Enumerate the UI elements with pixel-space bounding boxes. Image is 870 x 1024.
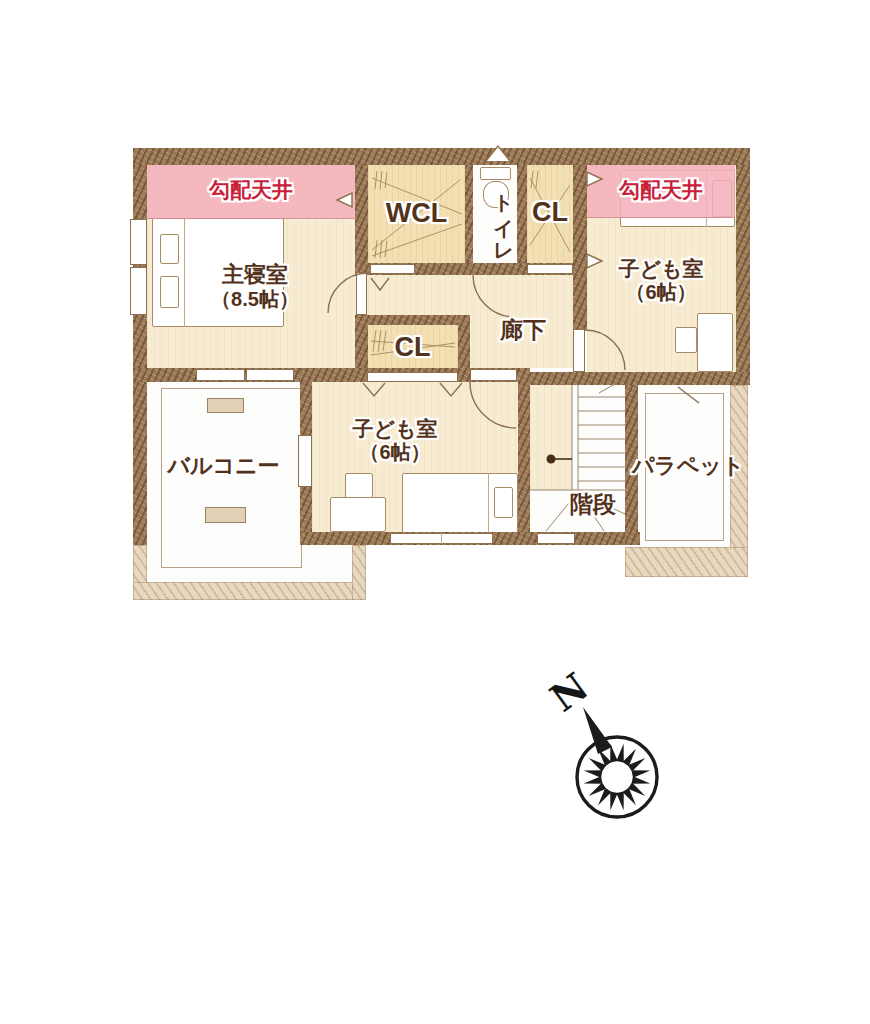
window-bedroom-south-1 xyxy=(196,369,245,381)
room-hallway-south xyxy=(530,385,572,490)
label-closet-top: CL xyxy=(527,197,573,227)
door-leaf-child-bottom xyxy=(470,369,517,381)
label-parapet: パラペット xyxy=(627,454,749,479)
label-child-bottom-name: 子ども室 xyxy=(305,417,485,441)
window-stairs-south xyxy=(537,533,575,544)
wall-top-outer xyxy=(133,148,750,165)
label-toilet: トイレ xyxy=(477,180,515,270)
child-bottom-desk xyxy=(330,497,386,532)
compass-ray xyxy=(598,749,611,767)
compass-rays xyxy=(584,744,651,811)
compass-ring xyxy=(577,737,657,817)
wall-bedroom-east-upper xyxy=(355,165,368,273)
opening-closet-top xyxy=(527,264,573,274)
child-bottom-bed-line xyxy=(488,473,489,533)
label-child-right-name: 子ども室 xyxy=(587,257,735,281)
compass-ray xyxy=(623,749,636,767)
compass-ray xyxy=(632,770,651,778)
banner-sloped-ceiling-right: 勾配天井 xyxy=(587,178,735,202)
balcony-band-right xyxy=(352,545,366,600)
label-child-right-size: （6帖） xyxy=(587,281,735,303)
compass-ray xyxy=(610,744,618,763)
closet-mid-sliding-track xyxy=(367,372,458,382)
label-balcony: バルコニー xyxy=(147,454,300,479)
label-stairs: 階段 xyxy=(548,492,638,518)
wall-stairs-top xyxy=(530,372,750,385)
master-bed-pillow-1 xyxy=(160,234,179,264)
label-child-bottom: 子ども室 （6帖） xyxy=(305,417,485,463)
compass-north-label: N xyxy=(542,664,597,721)
toilet-tank xyxy=(480,167,511,180)
compass-ray xyxy=(610,792,618,811)
wall-toilet-right xyxy=(517,165,527,263)
label-master-bedroom-name: 主寝室 xyxy=(160,263,350,288)
label-master-bedroom: 主寝室 （8.5帖） xyxy=(160,263,350,310)
label-child-right: 子ども室 （6帖） xyxy=(587,257,735,303)
banner-sloped-ceiling-left: 勾配天井 xyxy=(147,178,355,202)
child-right-chair xyxy=(675,327,697,353)
wall-right-outer xyxy=(736,165,750,385)
compass-ray xyxy=(616,744,624,763)
label-closet-mid: CL xyxy=(367,332,458,362)
compass-ray xyxy=(632,776,651,784)
compass-ray xyxy=(584,770,603,778)
compass-ray xyxy=(584,776,603,784)
balcony-vent-2 xyxy=(205,507,246,523)
wall-closet-top-right xyxy=(573,165,587,330)
opening-wcl xyxy=(370,264,415,274)
compass: N xyxy=(542,664,657,817)
window-bedroom-west-2 xyxy=(130,267,147,315)
compass-ray xyxy=(628,783,646,796)
compass-ray xyxy=(623,788,636,806)
label-master-bedroom-size: （8.5帖） xyxy=(160,288,350,310)
stairs-upper-run xyxy=(572,385,625,490)
compass-ray xyxy=(628,758,646,771)
child-bottom-bed-pillow xyxy=(494,487,513,518)
window-sash-line xyxy=(441,533,442,544)
balcony-floor-ext xyxy=(300,545,352,582)
child-right-desk xyxy=(697,313,733,372)
parapet-band-bottom xyxy=(625,547,748,577)
label-wcl: WCL xyxy=(368,198,465,228)
compass-ray xyxy=(589,783,607,796)
window-bedroom-west-1 xyxy=(130,219,147,265)
window-bedroom-south-2 xyxy=(246,369,294,381)
label-child-bottom-size: （6帖） xyxy=(305,441,485,463)
child-bottom-chair xyxy=(345,473,373,498)
compass-ray xyxy=(589,758,607,771)
door-leaf-bedroom xyxy=(356,272,367,315)
wall-closet-mid-top xyxy=(355,315,470,325)
wall-wcl-right xyxy=(465,165,473,263)
floor-plan-page: N 勾配天井 勾配天井 主寝室 （8.5帖） WCL トイレ CL 子ども室 （… xyxy=(0,0,870,1024)
balcony-vent-1 xyxy=(207,398,244,413)
compass-ray xyxy=(598,788,611,806)
balcony-band-bottom xyxy=(133,582,366,600)
label-hallway: 廊下 xyxy=(468,318,578,344)
wall-child-bottom-right xyxy=(518,382,530,545)
compass-needle xyxy=(583,707,612,754)
compass-ray xyxy=(616,792,624,811)
